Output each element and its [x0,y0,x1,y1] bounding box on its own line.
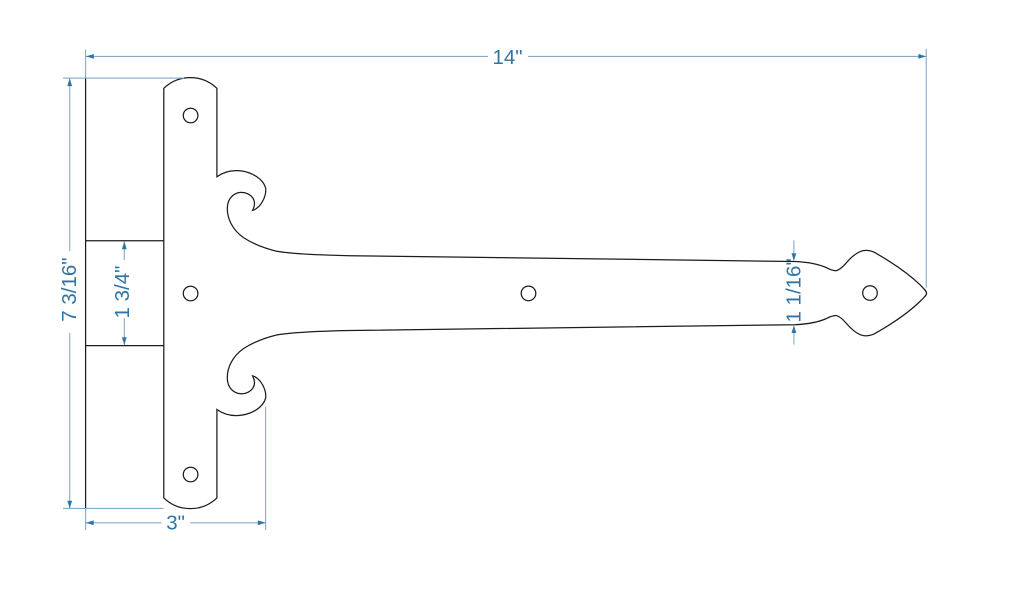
svg-text:14": 14" [492,46,522,69]
svg-text:1 3/4": 1 3/4" [111,266,134,319]
svg-text:3": 3" [166,512,185,535]
svg-text:1 1/16": 1 1/16" [783,258,806,322]
svg-text:7 3/16": 7 3/16" [58,257,81,321]
